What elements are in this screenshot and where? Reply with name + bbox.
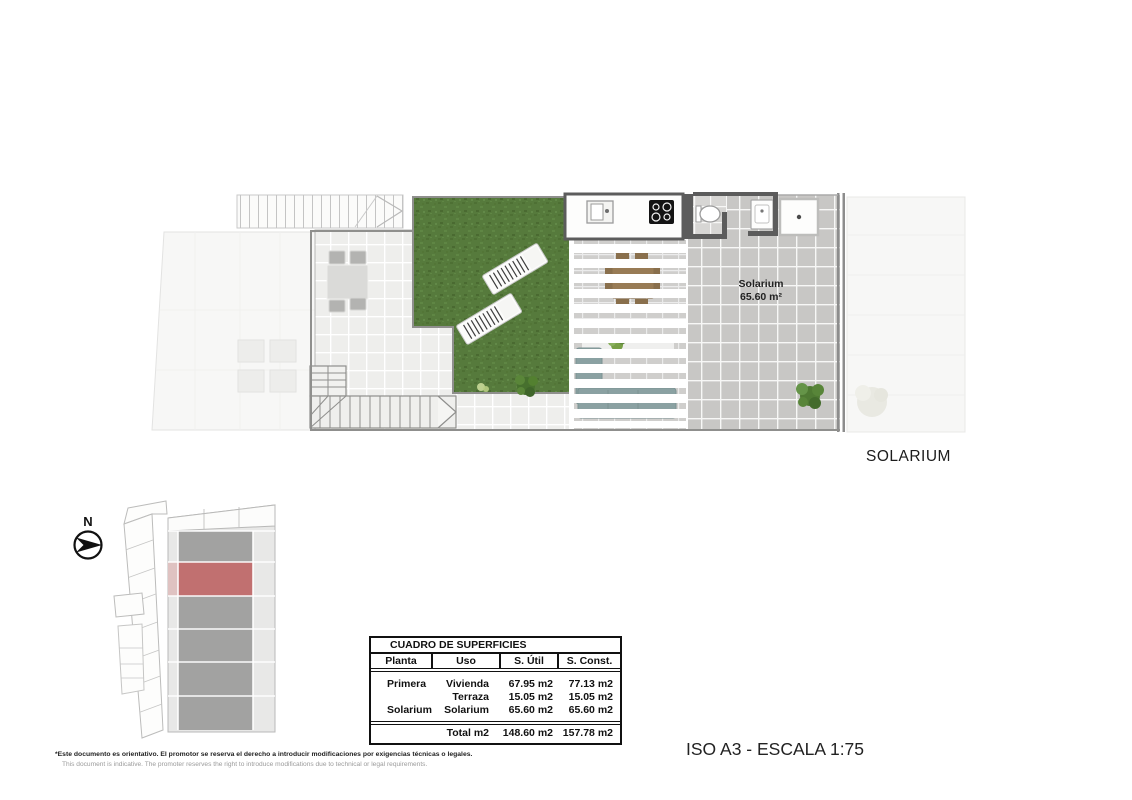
surfaces-table-title: CUADRO DE SUPERFICIES xyxy=(371,638,620,654)
cell-total-const: 157.78 m2 xyxy=(559,727,620,740)
lawn-plant xyxy=(515,375,538,397)
cell-total-util: 148.60 m2 xyxy=(501,727,559,740)
neighbor-unit-right xyxy=(847,197,965,432)
pergola-slats xyxy=(569,238,691,430)
cell-util: 65.60 m2 xyxy=(501,704,559,717)
col-planta: Planta xyxy=(371,654,433,668)
pergola-living-area xyxy=(569,238,691,430)
cell-util: 15.05 m2 xyxy=(501,691,559,704)
cell-planta: Primera xyxy=(371,678,433,691)
hob-icon xyxy=(649,200,674,224)
col-uso: Uso xyxy=(433,654,501,668)
potted-plant xyxy=(796,383,824,409)
building-block xyxy=(168,505,275,732)
cell-uso: Terraza xyxy=(433,691,501,704)
disclaimer-en: This document is indicative. The promote… xyxy=(55,760,472,770)
cell-uso: Vivienda xyxy=(433,678,501,691)
cell-planta xyxy=(371,691,433,704)
north-label: N xyxy=(83,514,92,529)
cell-const: 15.05 m2 xyxy=(559,691,620,704)
highlighted-unit xyxy=(178,562,253,596)
surfaces-table: CUADRO DE SUPERFICIES Planta Uso S. Útil… xyxy=(369,636,622,745)
plan-sheet: Solarium 65.60 m² xyxy=(0,0,1132,800)
table-row: Terraza 15.05 m2 15.05 m2 xyxy=(371,691,620,704)
washbasin-icon xyxy=(751,200,773,229)
summer-kitchen xyxy=(565,194,683,239)
disclaimer-es: *Este documento es orientativo. El promo… xyxy=(55,750,472,760)
cell-util: 67.95 m2 xyxy=(501,678,559,691)
disclaimer: *Este documento es orientativo. El promo… xyxy=(55,750,472,769)
table-total-row: Total m2 148.60 m2 157.78 m2 xyxy=(371,721,620,743)
shower-tray-icon xyxy=(780,199,818,235)
scale-label: ISO A3 - ESCALA 1:75 xyxy=(686,739,864,760)
floor-plan: Solarium 65.60 m² xyxy=(150,190,990,450)
ghost-staircase xyxy=(237,195,403,228)
surfaces-table-header: Planta Uso S. Útil S. Const. xyxy=(371,654,620,672)
neighbor-unit-left xyxy=(152,232,315,430)
cell-const: 77.13 m2 xyxy=(559,678,620,691)
cell-total-label: Total m2 xyxy=(433,727,501,740)
cell-const: 65.60 m2 xyxy=(559,704,620,717)
cell-planta: Solarium xyxy=(371,704,433,717)
svg-text:Solarium: Solarium xyxy=(739,278,784,290)
col-const: S. Const. xyxy=(559,654,620,668)
north-compass: N xyxy=(66,504,110,566)
solarium-area-label: Solarium 65.60 m² xyxy=(739,278,784,303)
surfaces-table-body: Primera Vivienda 67.95 m2 77.13 m2 Terra… xyxy=(371,672,620,721)
toilet-icon xyxy=(696,206,720,222)
table-row: Primera Vivienda 67.95 m2 77.13 m2 xyxy=(371,678,620,691)
site-key-plan xyxy=(108,498,283,743)
table-row: Solarium Solarium 65.60 m2 65.60 m2 xyxy=(371,704,620,717)
solarium-caption: SOLARIUM xyxy=(866,448,951,466)
sink-icon xyxy=(587,201,613,223)
svg-text:65.60 m²: 65.60 m² xyxy=(740,291,783,303)
site-parcels xyxy=(114,501,167,738)
col-util: S. Útil xyxy=(501,654,559,668)
cell-uso: Solarium xyxy=(433,704,501,717)
